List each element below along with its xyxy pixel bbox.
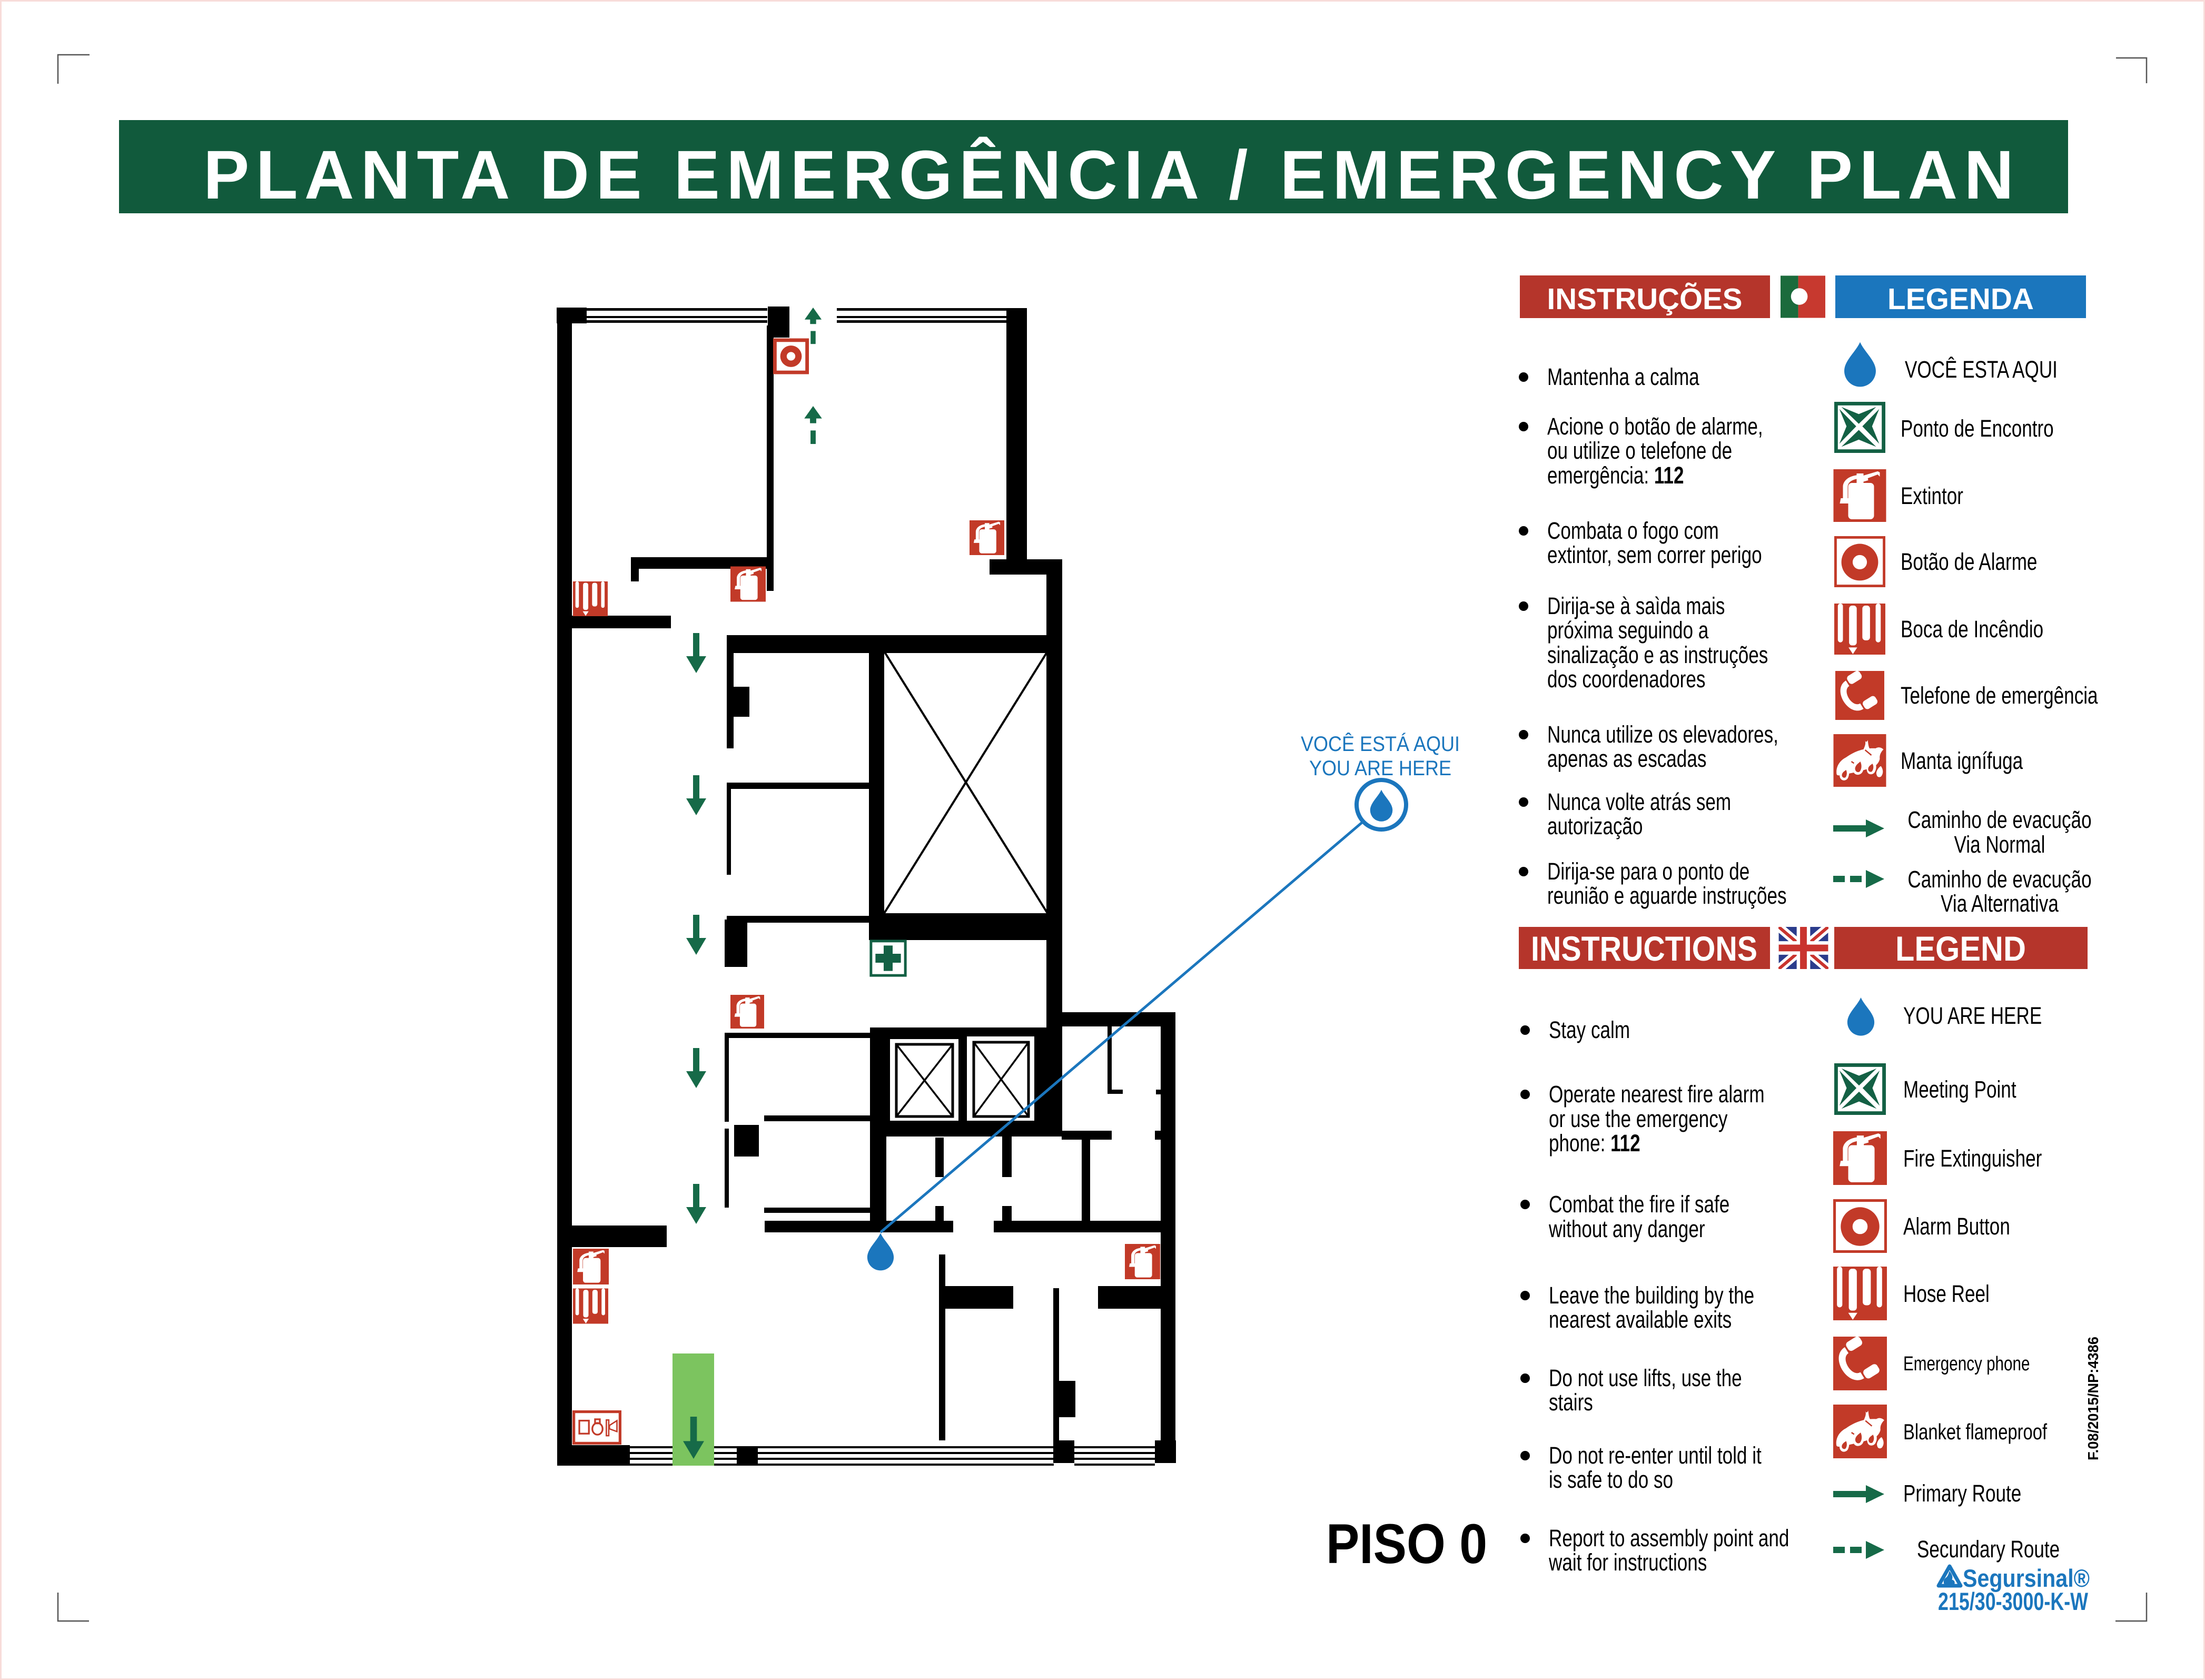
svg-text:wait for instructions: wait for instructions xyxy=(1548,1549,1707,1576)
svg-text:Stay calm: Stay calm xyxy=(1549,1016,1630,1043)
svg-text:F.08/2015/NP:4386: F.08/2015/NP:4386 xyxy=(2085,1337,2101,1460)
svg-text:apenas as escadas: apenas as escadas xyxy=(1547,745,1706,772)
svg-text:sinalização e as instruções: sinalização e as instruções xyxy=(1547,641,1768,668)
svg-text:emergência: 112: emergência: 112 xyxy=(1547,462,1684,489)
svg-text:Botão de Alarme: Botão de Alarme xyxy=(1901,548,2037,575)
svg-text:PISO 0: PISO 0 xyxy=(1326,1512,1487,1575)
svg-text:Dirija-se para o ponto de: Dirija-se para o ponto de xyxy=(1547,858,1749,885)
svg-text:Operate nearest fire alarm: Operate nearest fire alarm xyxy=(1549,1081,1765,1108)
svg-text:Secundary Route: Secundary Route xyxy=(1917,1536,2060,1563)
svg-text:stairs: stairs xyxy=(1549,1389,1593,1416)
svg-text:próxima seguindo a: próxima seguindo a xyxy=(1547,617,1709,644)
svg-text:PLANTA DE EMERGÊNCIA / EMERGEN: PLANTA DE EMERGÊNCIA / EMERGENCY PLAN xyxy=(203,136,2014,213)
svg-text:Via Normal: Via Normal xyxy=(1954,831,2045,858)
svg-text:Dirija-se à saìda mais: Dirija-se à saìda mais xyxy=(1547,592,1725,619)
svg-text:Via Alternativa: Via Alternativa xyxy=(1941,890,2059,917)
svg-text:Acione o botão de alarme,: Acione o botão de alarme, xyxy=(1547,413,1763,440)
svg-text:Mantenha a calma: Mantenha a calma xyxy=(1547,363,1699,390)
svg-text:Extintor: Extintor xyxy=(1901,482,1963,509)
svg-text:Alarm Button: Alarm Button xyxy=(1903,1213,2010,1240)
svg-text:Nunca utilize os elevadores,: Nunca utilize os elevadores, xyxy=(1547,721,1778,748)
svg-text:dos coordenadores: dos coordenadores xyxy=(1547,666,1705,693)
svg-text:LEGEND: LEGEND xyxy=(1895,929,2026,968)
svg-text:Hose Reel: Hose Reel xyxy=(1903,1280,1990,1307)
svg-text:Caminho de evacução: Caminho de evacução xyxy=(1907,866,2091,893)
svg-text:Nunca volte atrás sem: Nunca volte atrás sem xyxy=(1547,788,1731,815)
svg-text:reunião e aguarde instruções: reunião e aguarde instruções xyxy=(1547,882,1787,909)
svg-text:Combata o fogo com: Combata o fogo com xyxy=(1547,517,1719,544)
svg-text:Emergency phone: Emergency phone xyxy=(1903,1353,2030,1375)
svg-text:Ponto de Encontro: Ponto de Encontro xyxy=(1901,415,2054,442)
svg-text:phone: 112: phone: 112 xyxy=(1549,1130,1640,1157)
svg-text:LEGENDA: LEGENDA xyxy=(1887,282,2034,316)
svg-text:Telefone de emergência: Telefone de emergência xyxy=(1901,682,2098,709)
svg-text:VOCÊ ESTA AQUI: VOCÊ ESTA AQUI xyxy=(1905,356,2058,383)
svg-text:Manta ignífuga: Manta ignífuga xyxy=(1901,747,2023,774)
svg-text:YOU ARE HERE: YOU ARE HERE xyxy=(1309,757,1451,780)
svg-text:or use the emergency: or use the emergency xyxy=(1549,1105,1728,1132)
svg-text:INSTRUÇÕES: INSTRUÇÕES xyxy=(1547,282,1743,316)
svg-text:Combat the fire if safe: Combat the fire if safe xyxy=(1549,1191,1729,1218)
svg-text:autorização: autorização xyxy=(1547,813,1643,839)
svg-text:VOCÊ ESTÁ AQUI: VOCÊ ESTÁ AQUI xyxy=(1301,732,1460,756)
svg-text:Primary Route: Primary Route xyxy=(1903,1480,2021,1507)
svg-text:Do not use lifts, use the: Do not use lifts, use the xyxy=(1549,1365,1742,1391)
svg-text:INSTRUCTIONS: INSTRUCTIONS xyxy=(1531,929,1757,968)
svg-text:is safe to do so: is safe to do so xyxy=(1549,1466,1673,1493)
svg-text:Fire Extinguisher: Fire Extinguisher xyxy=(1903,1145,2042,1172)
svg-text:Leave the building by the: Leave the building by the xyxy=(1549,1282,1754,1309)
svg-text:Report to assembly point and: Report to assembly point and xyxy=(1549,1525,1789,1551)
svg-text:215/30-3000-K-W: 215/30-3000-K-W xyxy=(1938,1587,2088,1615)
svg-text:ou utilize o telefone de: ou utilize o telefone de xyxy=(1547,437,1732,464)
svg-text:Blanket flameproof: Blanket flameproof xyxy=(1903,1419,2048,1444)
svg-text:extintor, sem correr perigo: extintor, sem correr perigo xyxy=(1547,541,1762,568)
svg-text:YOU ARE HERE: YOU ARE HERE xyxy=(1903,1002,2042,1029)
svg-text:nearest available exits: nearest available exits xyxy=(1549,1306,1732,1333)
svg-text:Meeting Point: Meeting Point xyxy=(1903,1076,2016,1103)
svg-text:without any danger: without any danger xyxy=(1548,1215,1705,1242)
svg-text:Do not re-enter until told it: Do not re-enter until told it xyxy=(1549,1442,1762,1469)
svg-text:Caminho de evacução: Caminho de evacução xyxy=(1907,806,2091,833)
svg-text:Boca de Incêndio: Boca de Incêndio xyxy=(1901,616,2043,643)
